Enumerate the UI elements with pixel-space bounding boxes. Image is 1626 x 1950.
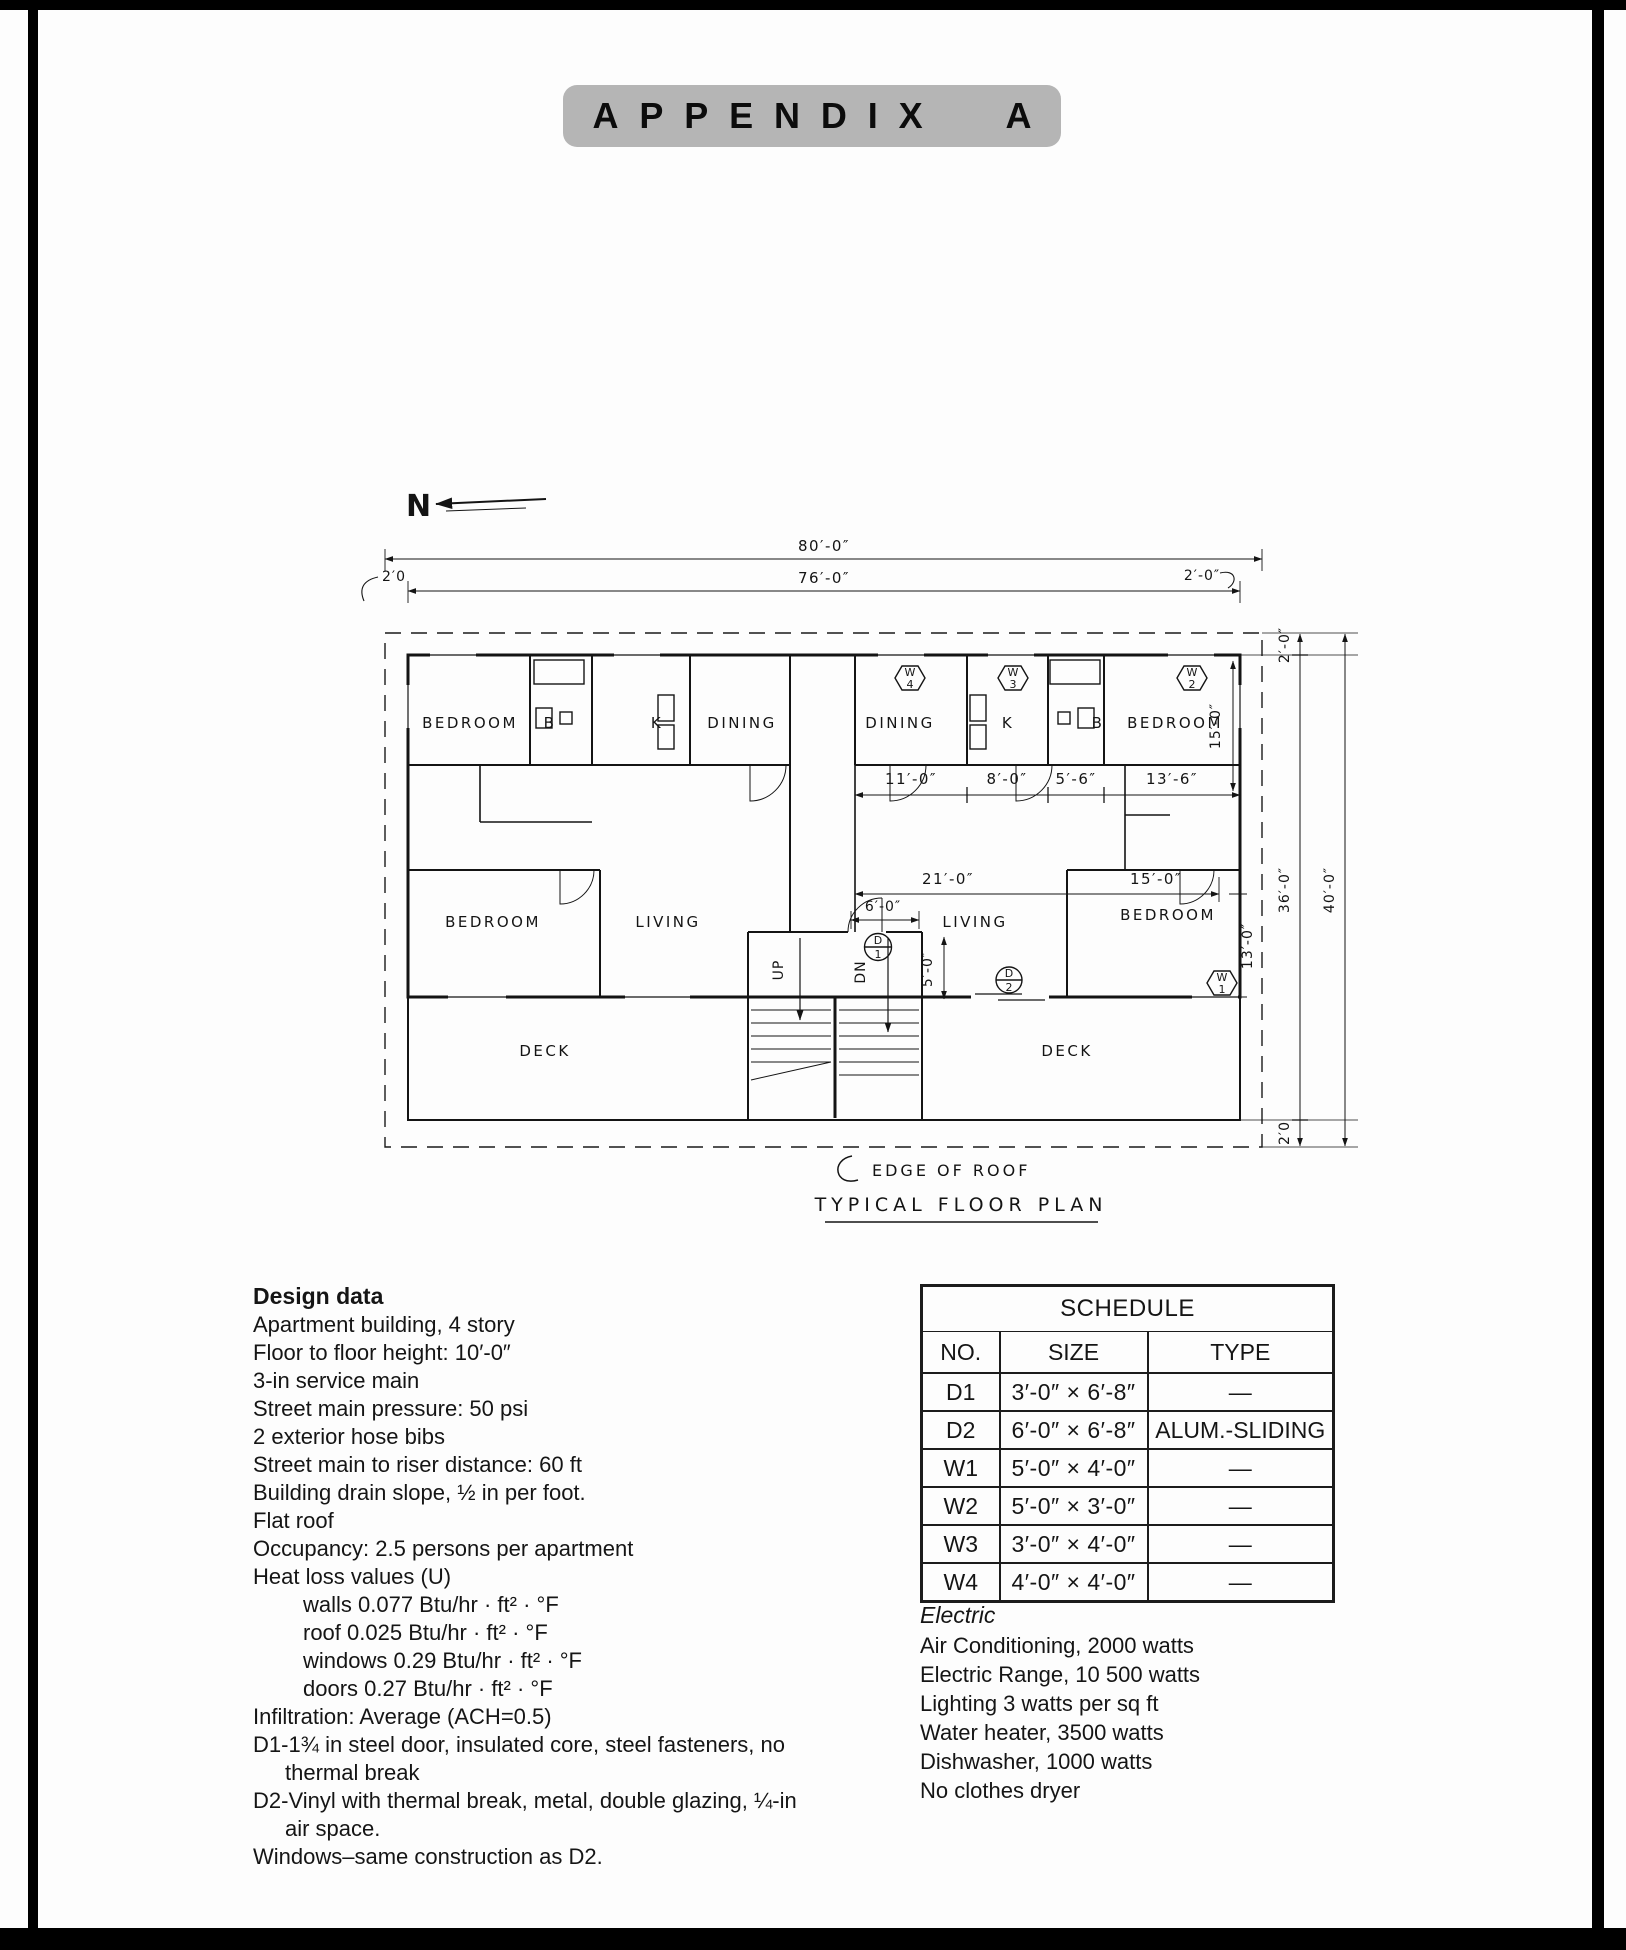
schedule-size: 5′-0″ × 4′-0″ — [1000, 1449, 1148, 1487]
dim-76ft: 76′-0″ — [798, 569, 850, 587]
symbol-d2: D 2 — [996, 967, 1022, 994]
floor-plan: N 80′-0″ 76′-0″ 2′0 2′-0″ — [330, 470, 1390, 1230]
appendix-title: APPENDIX A — [572, 95, 1053, 137]
roof-edge-outline — [385, 633, 1262, 1147]
schedule-row: D2 6′-0″ × 6′-8″ ALUM.-SLIDING — [922, 1411, 1334, 1449]
scan-edge-bottom — [0, 1928, 1626, 1950]
electric-line: Dishwasher, 1000 watts — [920, 1747, 1340, 1776]
schedule-row: W4 4′-0″ × 4′-0″ — — [922, 1563, 1334, 1602]
schedule-size: 6′-0″ × 6′-8″ — [1000, 1411, 1148, 1449]
design-data-line: doors 0.27 Btu/hr · ft² · °F — [253, 1675, 853, 1703]
schedule-type: ALUM.-SLIDING — [1148, 1411, 1334, 1449]
schedule-no: D2 — [922, 1411, 1000, 1449]
design-data-line: D1-1¾ in steel door, insulated core, ste… — [253, 1731, 853, 1759]
schedule-no: W3 — [922, 1525, 1000, 1563]
svg-text:D: D — [874, 934, 882, 947]
design-data-line: Windows–same construction as D2. — [253, 1843, 853, 1871]
electric-block: Electric Air Conditioning, 2000 watts El… — [920, 1600, 1340, 1805]
design-data-line: Floor to floor height: 10′-0″ — [253, 1339, 853, 1367]
schedule-size: 3′-0″ × 4′-0″ — [1000, 1525, 1148, 1563]
dim-8ft: 8′-0″ — [986, 770, 1027, 788]
schedule-row: W3 3′-0″ × 4′-0″ — — [922, 1525, 1334, 1563]
design-data-line: Occupancy: 2.5 persons per apartment — [253, 1535, 853, 1563]
stairs-dn-label: DN — [853, 960, 869, 983]
design-data-line: 3-in service main — [253, 1367, 853, 1395]
scan-edge-left — [28, 0, 38, 1950]
design-data-line: Flat roof — [253, 1507, 853, 1535]
schedule-col-type: TYPE — [1148, 1332, 1334, 1374]
design-data-line: roof 0.025 Btu/hr · ft² · °F — [253, 1619, 853, 1647]
room-living-se: LIVING — [942, 913, 1007, 931]
plan-title: TYPICAL FLOOR PLAN — [814, 1194, 1108, 1222]
scanned-appendix-page: APPENDIX A N 80′-0″ 76′-0″ 2′0 — [0, 0, 1626, 1950]
schedule-col-size: SIZE — [1000, 1332, 1148, 1374]
dim-11ft: 11′-0″ — [885, 770, 937, 788]
dim-15ft: 15′-0″ — [1130, 870, 1182, 888]
svg-text:13′-0″: 13′-0″ — [1240, 923, 1256, 969]
north-arrow-icon: N — [406, 489, 546, 524]
electric-line: Lighting 3 watts per sq ft — [920, 1689, 1340, 1718]
design-data-line: windows 0.29 Btu/hr · ft² · °F — [253, 1647, 853, 1675]
design-data-line: Street main to riser distance: 60 ft — [253, 1451, 853, 1479]
schedule-size: 5′-0″ × 3′-0″ — [1000, 1487, 1148, 1525]
schedule-table: SCHEDULE NO. SIZE TYPE D1 3′-0″ × 6′-8″ … — [920, 1284, 1335, 1603]
electric-heading: Electric — [920, 1600, 1340, 1631]
dim-21ft: 21′-0″ — [922, 870, 974, 888]
design-data-line: walls 0.077 Btu/hr · ft² · °F — [253, 1591, 853, 1619]
symbol-w3: W 3 — [998, 666, 1028, 691]
floor-plan-drawing: N 80′-0″ 76′-0″ 2′0 2′-0″ — [330, 470, 1390, 1230]
dim-40ft: 40′-0″ — [1322, 867, 1338, 913]
design-data-line: air space. — [253, 1815, 853, 1843]
room-bedroom-nw: BEDROOM — [422, 714, 518, 732]
room-kitchen-nw: K — [651, 714, 663, 732]
edge-of-roof-callout: EDGE OF ROOF — [838, 1156, 1031, 1181]
svg-text:1: 1 — [1219, 983, 1226, 996]
symbol-w2: W 2 — [1177, 666, 1207, 691]
design-data-line: thermal break — [253, 1759, 853, 1787]
room-deck-se: DECK — [1041, 1042, 1092, 1060]
svg-text:2: 2 — [1189, 678, 1196, 691]
room-dining-ne: DINING — [865, 714, 934, 732]
schedule-row: W1 5′-0″ × 4′-0″ — — [922, 1449, 1334, 1487]
electric-line: Air Conditioning, 2000 watts — [920, 1631, 1340, 1660]
dim-row-south-rooms: 21′-0″ 15′-0″ — [855, 870, 1219, 902]
schedule-type: — — [1148, 1525, 1334, 1563]
dim-5ft6: 5′-6″ — [1055, 770, 1096, 788]
schedule-title: SCHEDULE — [922, 1286, 1334, 1332]
design-data-line: Building drain slope, ½ in per foot. — [253, 1479, 853, 1507]
svg-text:TYPICAL FLOOR PLAN: TYPICAL FLOOR PLAN — [814, 1194, 1108, 1216]
dim-2ft-right: 2′-0″ — [1184, 568, 1220, 584]
schedule-col-no: NO. — [922, 1332, 1000, 1374]
design-data-line: Heat loss values (U) — [253, 1563, 853, 1591]
dim-interior-width: 76′-0″ 2′0 2′-0″ — [362, 568, 1240, 603]
room-bath-nw: B — [544, 714, 557, 732]
room-deck-sw: DECK — [519, 1042, 570, 1060]
design-data-heading: Design data — [253, 1281, 853, 1311]
svg-text:D: D — [1005, 967, 1013, 980]
design-data-line: 2 exterior hose bibs — [253, 1423, 853, 1451]
dim-row-north-rooms: 11′-0″ 8′-0″ 5′-6″ 13′-6″ — [855, 770, 1240, 807]
design-data-line: Apartment building, 4 story — [253, 1311, 853, 1339]
dim-bedroom-ne-depth: 15′-0″ — [1208, 661, 1233, 791]
room-bedroom-se: BEDROOM — [1120, 906, 1216, 924]
dim-overall-width: 80′-0″ — [385, 537, 1262, 571]
dim-right-side: 2′-0″ 36′-0″ 2′0 40′-0″ — [1240, 627, 1358, 1147]
dim-5ft: 5′-0″ — [920, 951, 936, 987]
svg-text:1: 1 — [875, 948, 882, 961]
schedule-no: W2 — [922, 1487, 1000, 1525]
symbol-d1: D 1 — [865, 934, 892, 962]
dim-2ft-bottom-right: 2′0 — [1277, 1121, 1293, 1145]
schedule-no: W4 — [922, 1563, 1000, 1602]
design-data-line: Street main pressure: 50 psi — [253, 1395, 853, 1423]
svg-text:15′-0″: 15′-0″ — [1208, 703, 1224, 749]
symbol-w4: W 4 — [895, 666, 925, 691]
dim-36ft: 36′-0″ — [1277, 867, 1293, 913]
appendix-title-banner: APPENDIX A — [563, 85, 1061, 147]
room-kitchen-ne: K — [1002, 714, 1014, 732]
svg-text:4: 4 — [907, 678, 914, 691]
dim-2ft-top-right: 2′-0″ — [1277, 627, 1293, 663]
schedule-row: W2 5′-0″ × 3′-0″ — — [922, 1487, 1334, 1525]
window-symbols — [408, 655, 1240, 1000]
dim-2ft-left: 2′0 — [382, 569, 406, 585]
room-bedroom-sw: BEDROOM — [445, 913, 541, 931]
dim-6ft: 6′-0″ — [865, 899, 901, 915]
design-data-block: Design data Apartment building, 4 story … — [253, 1281, 853, 1871]
north-label: N — [406, 489, 431, 524]
electric-line: No clothes dryer — [920, 1776, 1340, 1805]
schedule-size: 3′-0″ × 6′-8″ — [1000, 1373, 1148, 1411]
electric-line: Electric Range, 10 500 watts — [920, 1660, 1340, 1689]
dim-13ft6: 13′-6″ — [1146, 770, 1198, 788]
schedule-type: — — [1148, 1373, 1334, 1411]
dim-bedroom-se-depth: 13′-0″ — [1229, 894, 1256, 997]
schedule-type: — — [1148, 1487, 1334, 1525]
design-data-line: D2-Vinyl with thermal break, metal, doub… — [253, 1787, 853, 1815]
schedule-type: — — [1148, 1449, 1334, 1487]
electric-line: Water heater, 3500 watts — [920, 1718, 1340, 1747]
svg-text:EDGE OF ROOF: EDGE OF ROOF — [872, 1161, 1030, 1180]
schedule-type: — — [1148, 1563, 1334, 1602]
schedule-no: D1 — [922, 1373, 1000, 1411]
room-bath-ne: B — [1092, 714, 1105, 732]
room-living-sw: LIVING — [635, 913, 700, 931]
svg-text:3: 3 — [1010, 678, 1017, 691]
schedule-no: W1 — [922, 1449, 1000, 1487]
schedule-size: 4′-0″ × 4′-0″ — [1000, 1563, 1148, 1602]
stairs-up-label: UP — [771, 960, 787, 981]
scan-edge-right — [1592, 0, 1604, 1950]
schedule-row: D1 3′-0″ × 6′-8″ — — [922, 1373, 1334, 1411]
room-dining-nw: DINING — [707, 714, 776, 732]
symbol-w1: W 1 — [1207, 971, 1237, 996]
svg-text:2: 2 — [1006, 981, 1013, 994]
scan-edge-top — [0, 0, 1626, 10]
design-data-line: Infiltration: Average (ACH=0.5) — [253, 1703, 853, 1731]
dim-80ft: 80′-0″ — [798, 537, 850, 555]
